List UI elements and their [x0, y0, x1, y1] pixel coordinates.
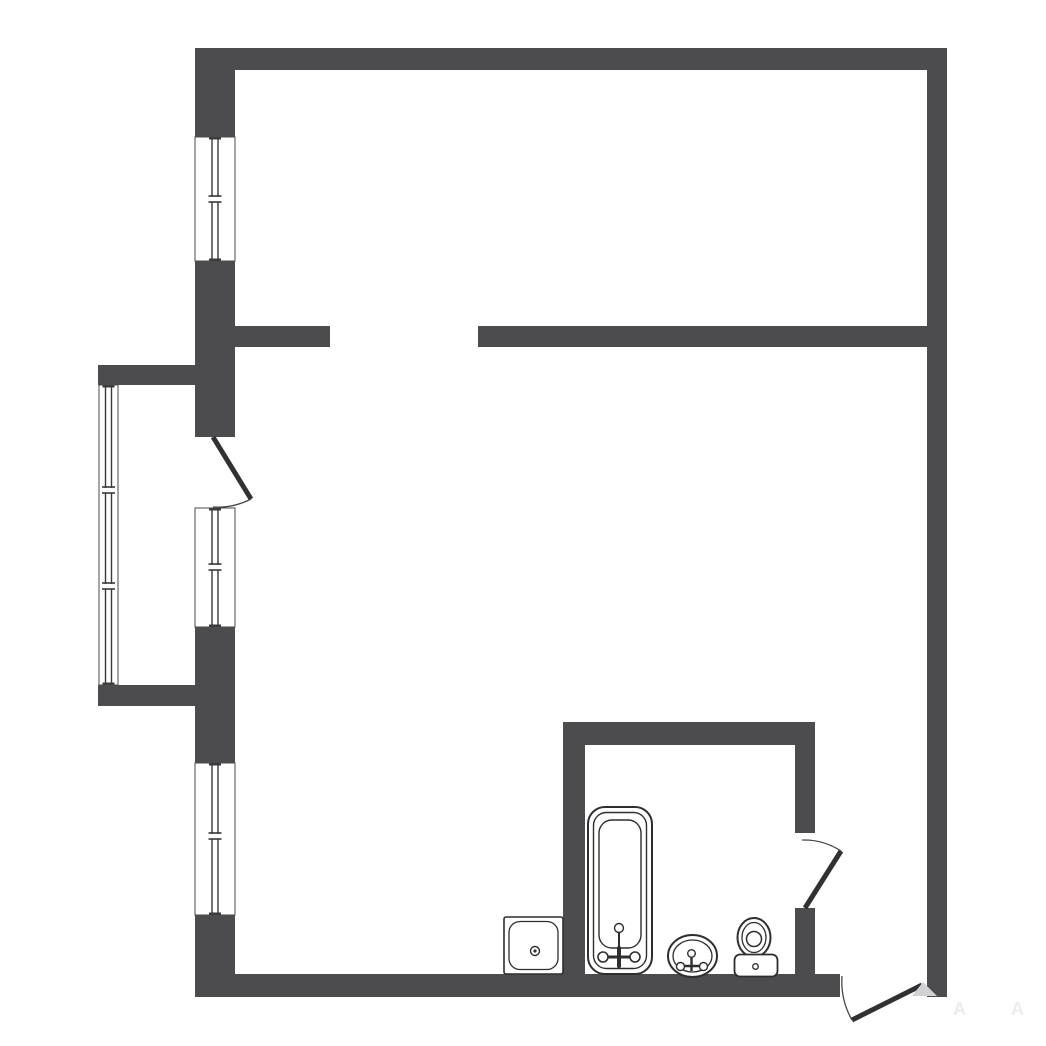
wash-basin — [677, 963, 685, 971]
wash-basin — [700, 963, 708, 971]
bathtub — [598, 952, 608, 962]
bathroom-wall-left — [563, 722, 585, 974]
kitchen-sink — [533, 949, 536, 952]
plan-background — [0, 0, 1046, 1046]
toilet — [753, 964, 759, 970]
balcony-glazing — [99, 385, 118, 685]
bathtub — [630, 952, 640, 962]
wall-top — [195, 48, 947, 70]
bathroom-wall-top — [563, 722, 815, 745]
balcony-stub-top — [98, 365, 195, 385]
partition-left — [235, 326, 330, 347]
wash-basin — [688, 950, 696, 958]
toilet — [747, 932, 762, 947]
window-top-room-sash-gap — [211, 197, 220, 202]
floor-plan-drawing: AA — [0, 0, 1046, 1046]
window-balcony-door-sash-gap — [211, 565, 220, 570]
bathroom-wall-right-upper — [795, 722, 815, 833]
watermark-letter: A — [953, 999, 966, 1019]
bathroom-wall-right-lower — [795, 908, 815, 974]
balcony-glazing-sash-gap — [104, 584, 113, 589]
bathtub — [615, 924, 624, 933]
wall-right — [927, 48, 947, 997]
wall-left-lower — [195, 627, 235, 763]
wall-bottom — [195, 974, 840, 997]
kitchen-sink — [509, 922, 558, 970]
wall-left-bottom — [195, 915, 235, 997]
wall-left-upper — [195, 48, 235, 137]
balcony-glazing-sash-gap — [104, 488, 113, 493]
floor-plan-page: AA — [0, 0, 1046, 1046]
watermark-letter: A — [1011, 999, 1024, 1019]
window-living-room-sash-gap — [211, 834, 220, 839]
wall-left-mid — [195, 261, 235, 437]
balcony-stub-bottom — [98, 685, 195, 706]
partition-right — [478, 326, 927, 347]
